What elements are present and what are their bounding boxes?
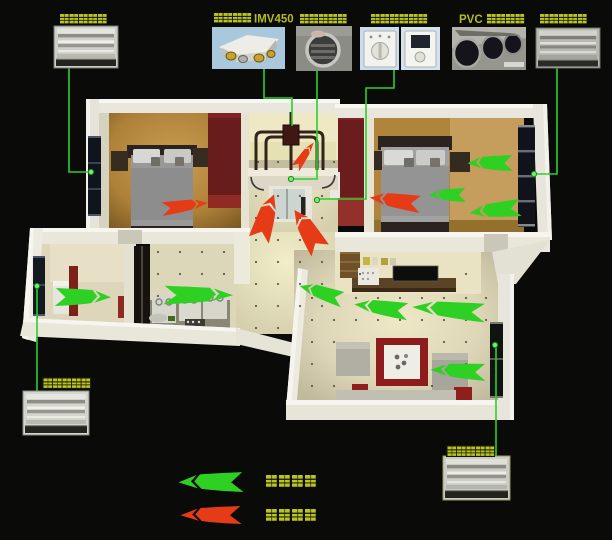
svg-text:IMV450: IMV450 [254, 14, 294, 26]
svg-text:PVC: PVC [459, 14, 483, 26]
